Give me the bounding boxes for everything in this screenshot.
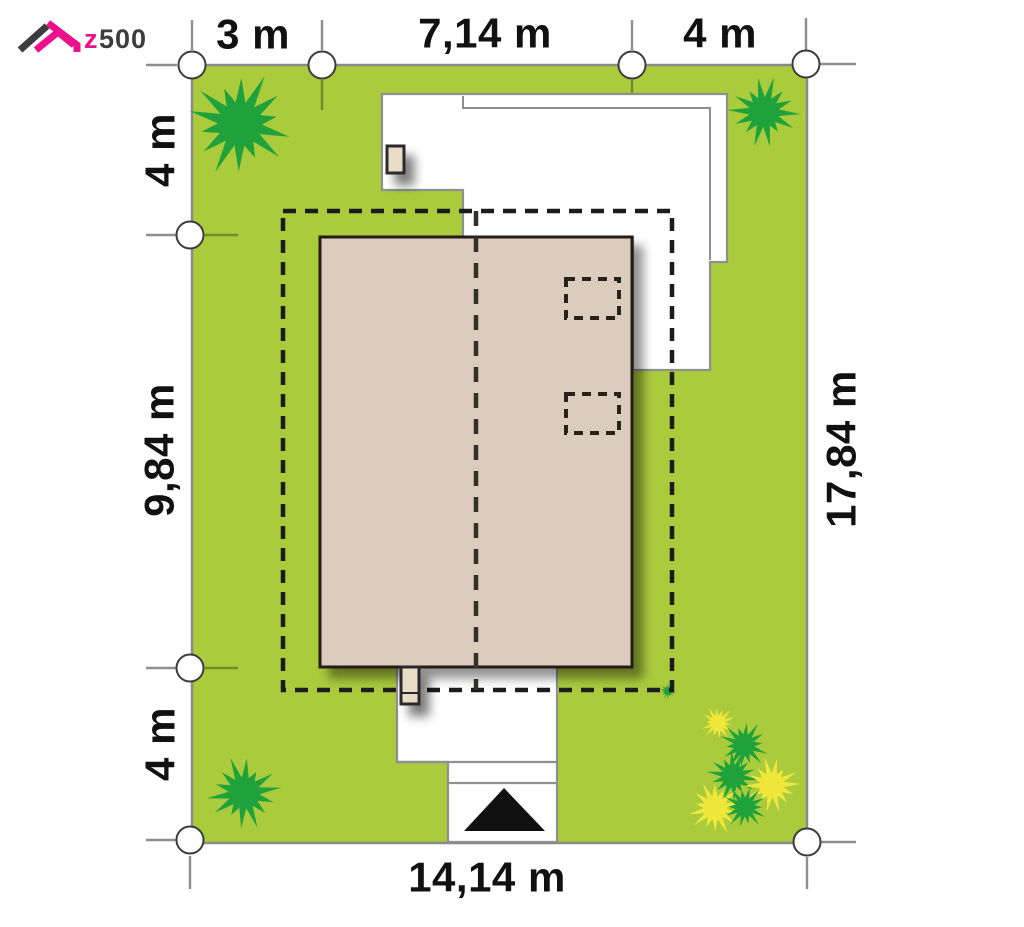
dimension-node: [619, 52, 646, 79]
dim-top-mid: 7,14 m: [418, 10, 552, 57]
dimension-node: [793, 51, 820, 78]
dim-left-bottom: 4 m: [137, 707, 184, 781]
z500-logo: z 500: [20, 23, 147, 54]
chimney-bottom-box: [401, 667, 419, 704]
chimney-bottom: [401, 667, 419, 704]
chimney-top: [387, 146, 404, 173]
dimension-node: [179, 52, 206, 79]
dim-right-full: 17,84 m: [818, 370, 865, 528]
dim-top-right: 4 m: [683, 10, 757, 57]
dim-top-left: 3 m: [216, 11, 290, 58]
dim-bottom-full: 14,14 m: [408, 854, 566, 901]
dimension-node: [177, 827, 204, 854]
dimension-node: [177, 222, 204, 249]
dimension-node: [177, 655, 204, 682]
dimension-node: [794, 829, 821, 856]
dimension-node: [309, 52, 336, 79]
dim-left-top: 4 m: [137, 113, 184, 187]
logo-text-z: z: [84, 24, 98, 54]
dim-left-mid: 9,84 m: [136, 383, 183, 517]
logo-text-500: 500: [99, 24, 147, 54]
site-plan-figure: z 500: [0, 0, 1024, 927]
